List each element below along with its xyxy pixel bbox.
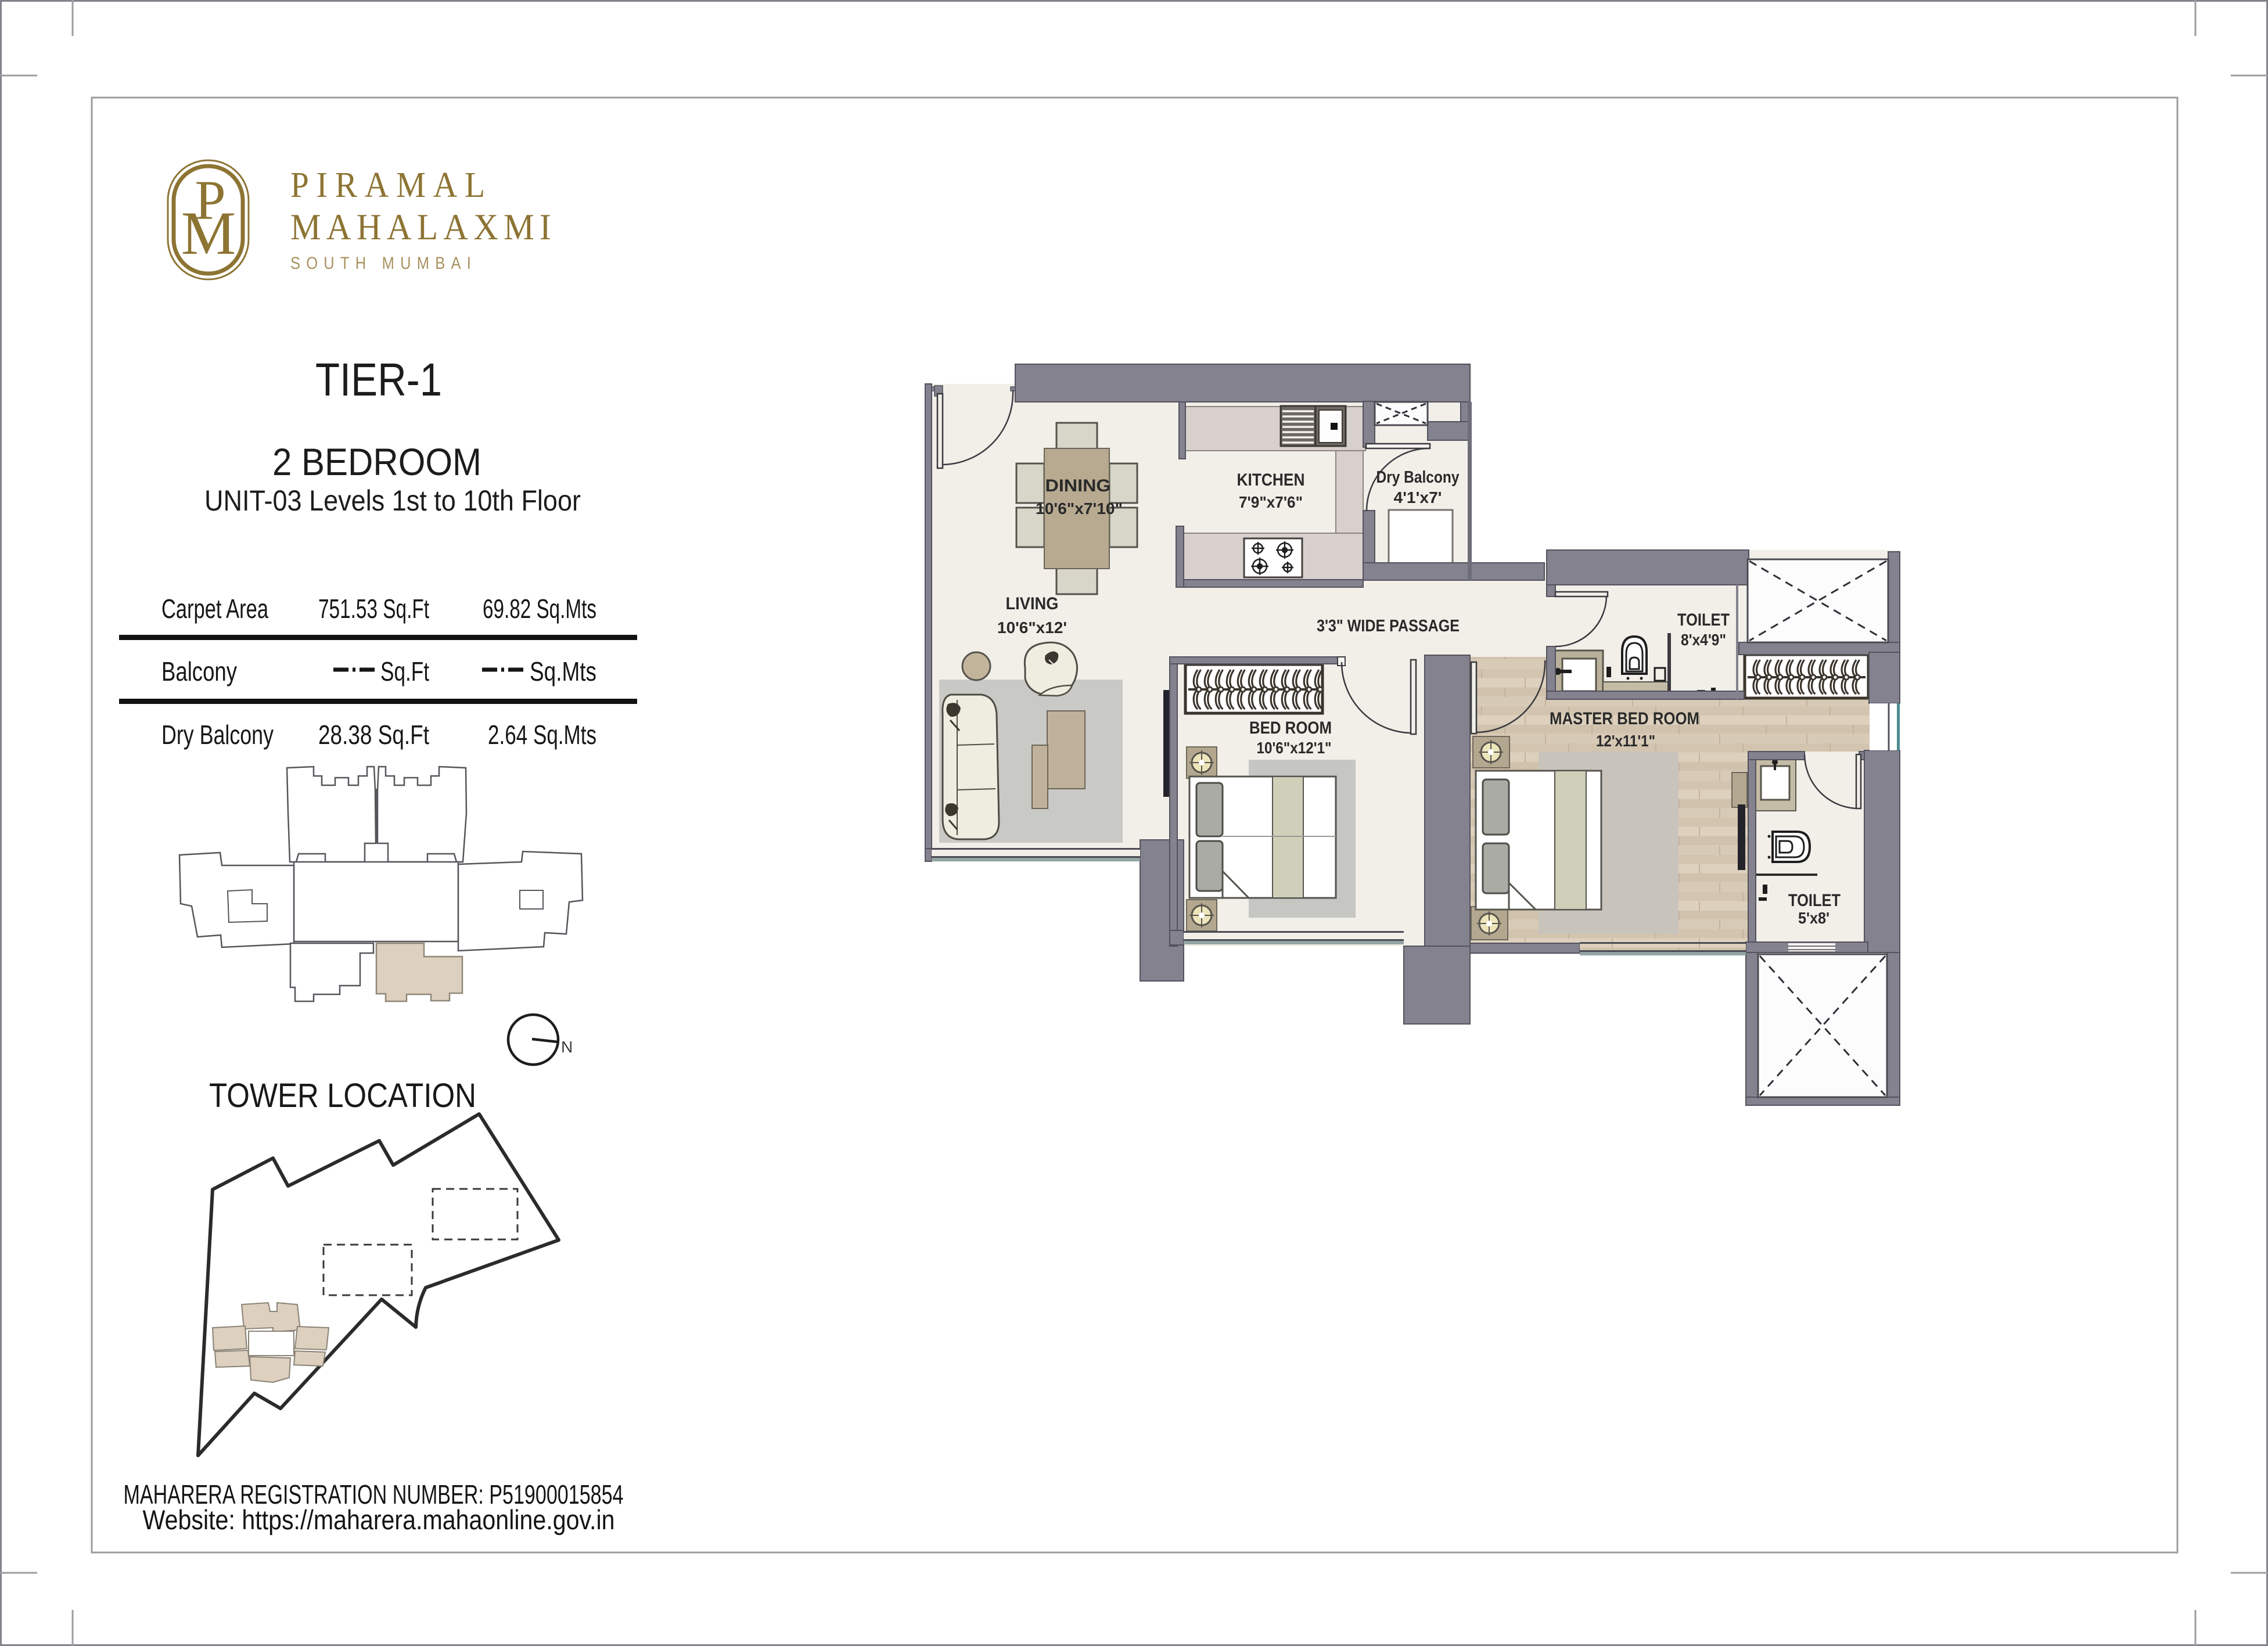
svg-text:3'3" WIDE PASSAGE: 3'3" WIDE PASSAGE [1317, 617, 1460, 635]
svg-text:KITCHEN: KITCHEN [1237, 470, 1305, 490]
svg-text:Website: https://maharera.maha: Website: https://maharera.mahaonline.gov… [143, 1504, 615, 1535]
svg-text:MAHALAXMI: MAHALAXMI [290, 206, 556, 247]
svg-text:10'6"x12'1": 10'6"x12'1" [1257, 739, 1332, 757]
svg-text:N: N [561, 1038, 573, 1056]
svg-text:LIVING: LIVING [1006, 594, 1059, 613]
svg-text:2 BEDROOM: 2 BEDROOM [272, 440, 481, 483]
svg-text:Sq.Ft: Sq.Ft [380, 656, 429, 687]
svg-text:Carpet Area: Carpet Area [161, 594, 268, 624]
svg-text:751.53 Sq.Ft: 751.53 Sq.Ft [318, 594, 429, 624]
svg-text:7'9"x7'6": 7'9"x7'6" [1239, 493, 1303, 511]
svg-text:Dry Balcony: Dry Balcony [1376, 468, 1460, 487]
svg-text:69.82 Sq.Mts: 69.82 Sq.Mts [483, 594, 596, 624]
svg-text:28.38 Sq.Ft: 28.38 Sq.Ft [318, 720, 429, 750]
svg-text:TOWER LOCATION: TOWER LOCATION [209, 1077, 476, 1115]
svg-text:Balcony: Balcony [161, 656, 237, 687]
svg-text:12'x11'1": 12'x11'1" [1596, 732, 1655, 750]
svg-text:M: M [181, 199, 236, 267]
svg-text:TOILET: TOILET [1788, 891, 1841, 910]
svg-text:TIER-1: TIER-1 [315, 354, 442, 405]
svg-text:SOUTH MUMBAI: SOUTH MUMBAI [290, 254, 477, 273]
svg-text:PIRAMAL: PIRAMAL [290, 166, 493, 205]
svg-text:10'6"x7'10": 10'6"x7'10" [1036, 499, 1123, 517]
svg-text:BED ROOM: BED ROOM [1249, 718, 1332, 738]
svg-text:DINING: DINING [1045, 476, 1111, 495]
svg-text:TOILET: TOILET [1677, 610, 1730, 630]
svg-text:5'x8': 5'x8' [1798, 909, 1830, 927]
svg-text:8'x4'9": 8'x4'9" [1681, 631, 1726, 649]
svg-text:Sq.Mts: Sq.Mts [530, 656, 596, 687]
svg-text:10'6"x12': 10'6"x12' [997, 619, 1067, 637]
svg-text:Dry Balcony: Dry Balcony [161, 720, 274, 750]
svg-text:UNIT-03 Levels 1st to 10th Flo: UNIT-03 Levels 1st to 10th Floor [204, 484, 581, 517]
svg-text:4'1'x7': 4'1'x7' [1394, 488, 1442, 506]
svg-text:2.64 Sq.Mts: 2.64 Sq.Mts [488, 720, 596, 750]
svg-text:MASTER BED ROOM: MASTER BED ROOM [1550, 709, 1699, 728]
